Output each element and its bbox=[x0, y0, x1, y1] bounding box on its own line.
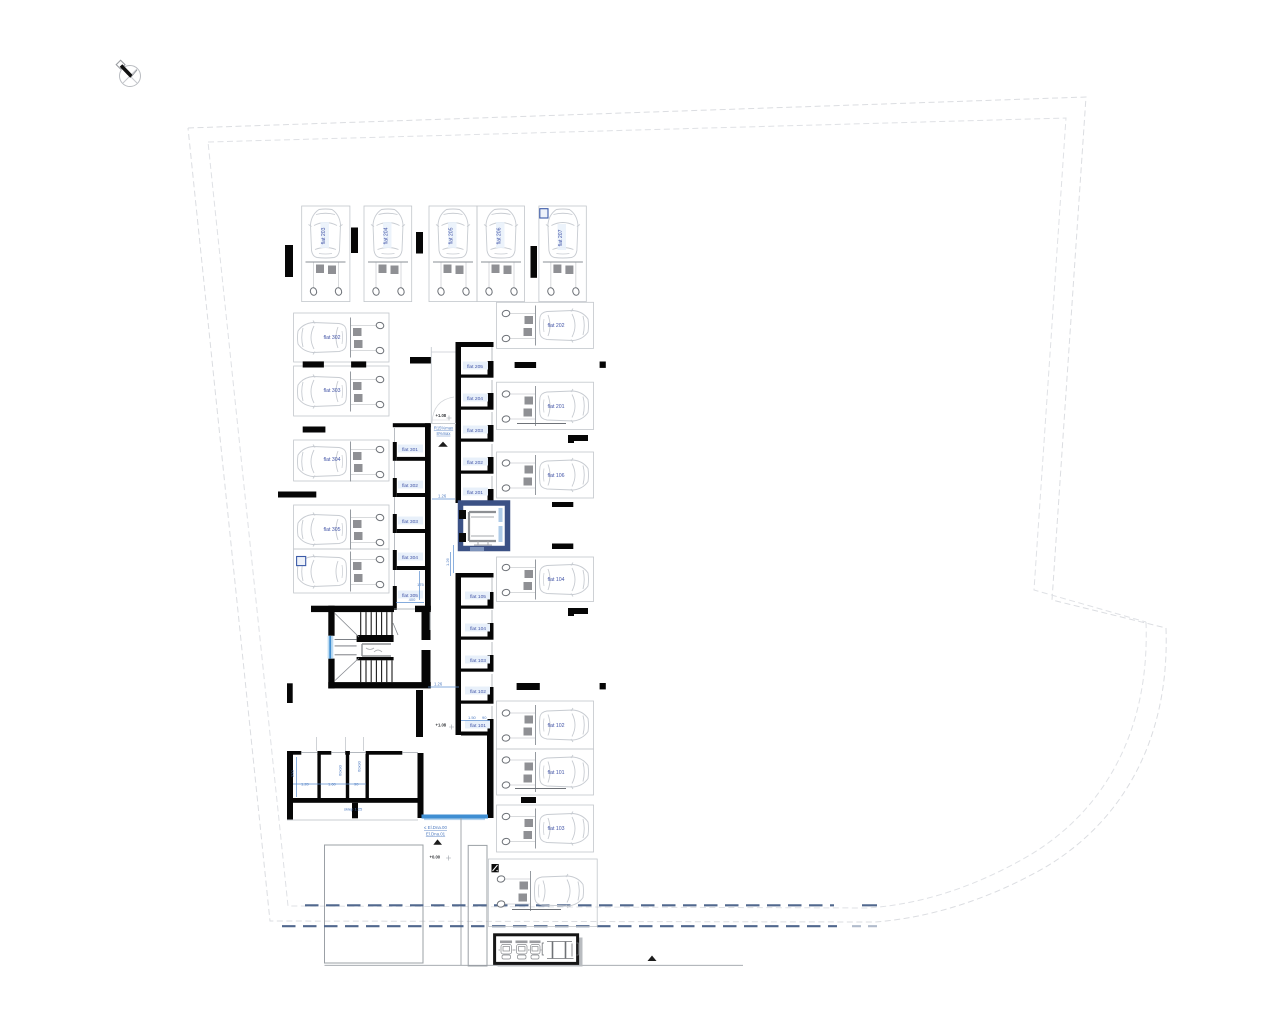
svg-text:1.50: 1.50 bbox=[468, 715, 477, 720]
svg-text:flat 202: flat 202 bbox=[547, 323, 564, 329]
svg-text:flat 301: flat 301 bbox=[402, 447, 418, 453]
svg-text:flat 303: flat 303 bbox=[323, 388, 340, 394]
svg-text:El.Dna.01: El.Dna.01 bbox=[426, 831, 446, 836]
svg-text:flat 105: flat 105 bbox=[470, 594, 486, 600]
svg-text:flat 304: flat 304 bbox=[323, 457, 340, 463]
svg-text:flat 104: flat 104 bbox=[470, 626, 486, 632]
svg-text:8%max: 8%max bbox=[437, 431, 452, 436]
svg-text:flat 103: flat 103 bbox=[470, 658, 486, 664]
svg-text:flat 205: flat 205 bbox=[449, 227, 455, 244]
svg-text:flat 304: flat 304 bbox=[402, 555, 418, 561]
svg-text:flat 101: flat 101 bbox=[547, 770, 564, 776]
svg-text:60x90: 60x90 bbox=[357, 760, 362, 772]
svg-text:flat 102: flat 102 bbox=[470, 689, 486, 695]
svg-text:flat 204: flat 204 bbox=[467, 396, 483, 402]
svg-text:sklep 1:25: sklep 1:25 bbox=[344, 807, 363, 812]
svg-text:flat 302: flat 302 bbox=[323, 335, 340, 341]
svg-text:1.26: 1.26 bbox=[434, 682, 443, 687]
svg-text:+1.08: +1.08 bbox=[436, 413, 447, 418]
svg-text:flat 201: flat 201 bbox=[467, 490, 483, 496]
svg-text:flat 207: flat 207 bbox=[558, 229, 564, 246]
svg-text:1.26: 1.26 bbox=[438, 494, 447, 499]
svg-text:+1.08: +1.08 bbox=[436, 723, 447, 728]
svg-text:flat 203: flat 203 bbox=[321, 227, 327, 244]
svg-text:flat 203: flat 203 bbox=[467, 428, 483, 434]
svg-text:1.60: 1.60 bbox=[328, 782, 337, 787]
svg-text:flat 302: flat 302 bbox=[402, 483, 418, 489]
svg-text:flat 202: flat 202 bbox=[467, 460, 483, 466]
svg-text:+0.00: +0.00 bbox=[430, 855, 441, 860]
svg-text:flat 104: flat 104 bbox=[547, 577, 564, 583]
svg-text:175: 175 bbox=[417, 582, 424, 587]
svg-text:flat 305: flat 305 bbox=[323, 527, 340, 533]
svg-text:1.20: 1.20 bbox=[301, 782, 310, 787]
svg-text:flat 204: flat 204 bbox=[384, 227, 390, 244]
svg-text:220: 220 bbox=[290, 770, 295, 777]
svg-text:flat 103: flat 103 bbox=[547, 826, 564, 832]
svg-text:flat 205: flat 205 bbox=[467, 364, 483, 370]
svg-text:flat 102: flat 102 bbox=[547, 723, 564, 729]
svg-text:400: 400 bbox=[409, 597, 416, 602]
svg-text:1.26: 1.26 bbox=[445, 557, 450, 566]
svg-text:flat 201: flat 201 bbox=[547, 404, 564, 410]
svg-text:flat 106: flat 106 bbox=[547, 473, 564, 479]
svg-text:flat 303: flat 303 bbox=[402, 519, 418, 525]
svg-text:flat 101: flat 101 bbox=[470, 723, 486, 729]
svg-text:60x90: 60x90 bbox=[338, 764, 343, 776]
svg-text:≤ El.Dna.00: ≤ El.Dna.00 bbox=[424, 825, 447, 830]
svg-text:90: 90 bbox=[482, 715, 487, 720]
svg-text:90: 90 bbox=[354, 782, 359, 787]
svg-text:flat 206: flat 206 bbox=[497, 227, 503, 244]
